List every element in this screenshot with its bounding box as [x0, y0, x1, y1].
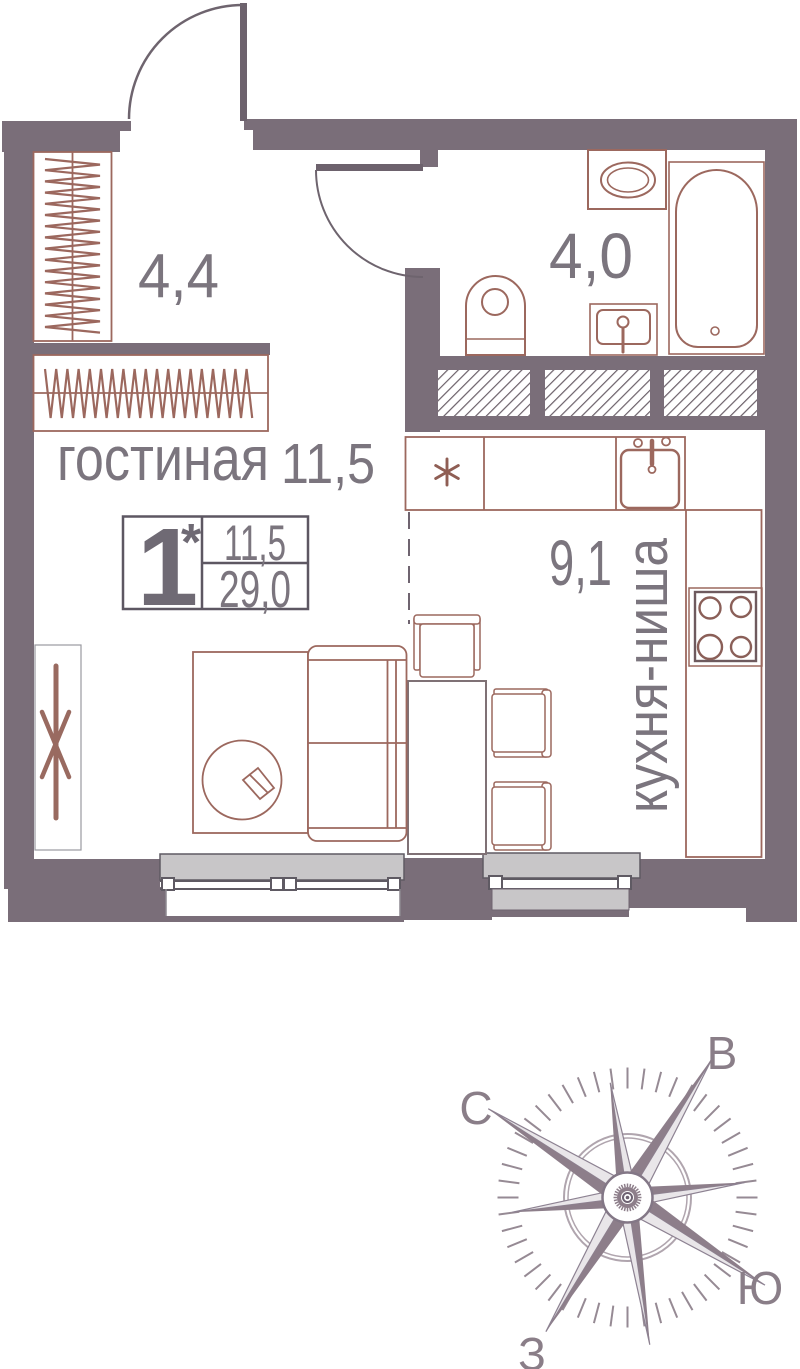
svg-text:9,1: 9,1 — [549, 527, 612, 599]
svg-text:С: С — [459, 1082, 492, 1134]
svg-text:4,0: 4,0 — [549, 220, 633, 292]
svg-text:кухня-ниша: кухня-ниша — [615, 537, 680, 813]
svg-text:29,0: 29,0 — [219, 561, 291, 619]
svg-text:*: * — [181, 514, 202, 572]
svg-text:Ю: Ю — [737, 1262, 783, 1314]
svg-text:11,5: 11,5 — [281, 432, 375, 496]
svg-text:З: З — [518, 1328, 546, 1369]
svg-text:В: В — [707, 1027, 738, 1079]
svg-text:4,4: 4,4 — [138, 242, 219, 311]
svg-text:гостиная: гостиная — [57, 425, 269, 494]
